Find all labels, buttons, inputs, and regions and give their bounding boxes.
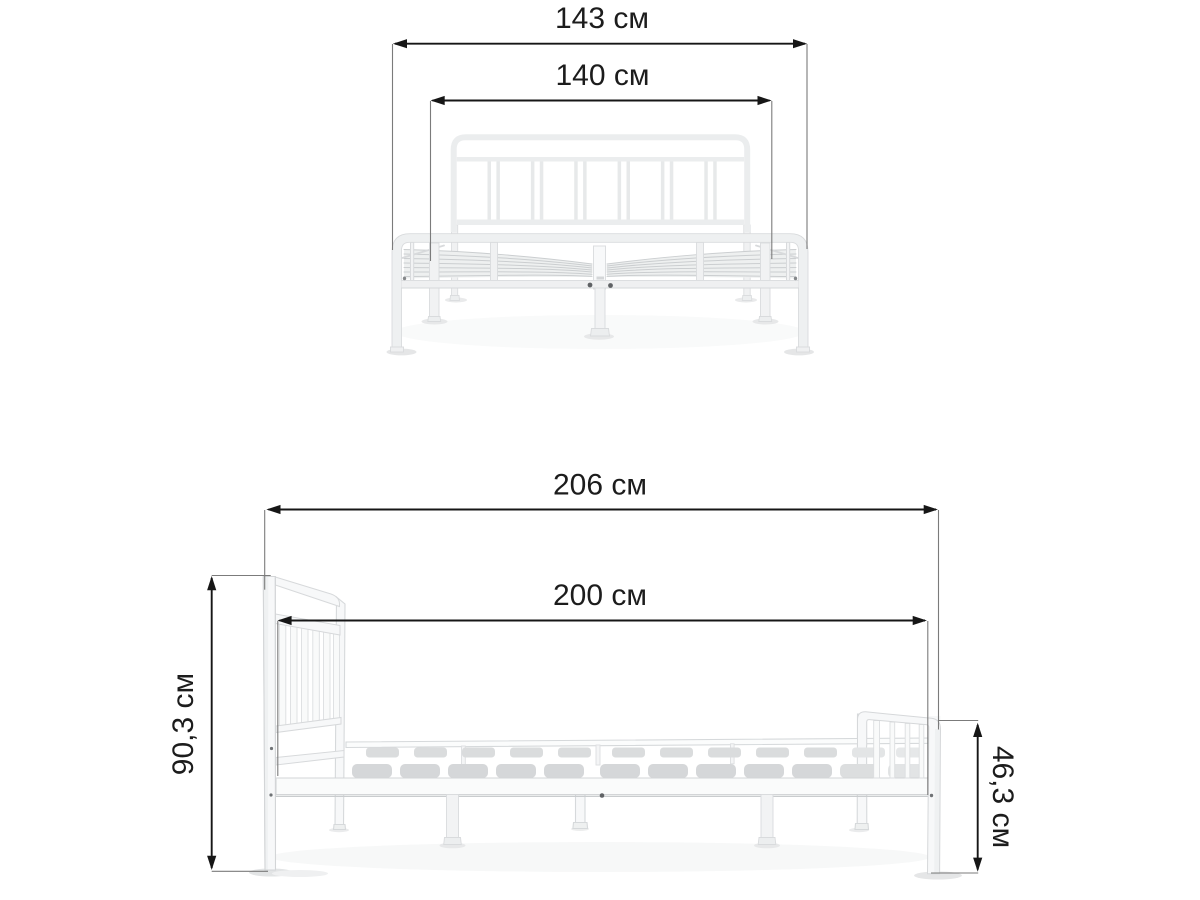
svg-text:143 см: 143 см: [555, 2, 649, 35]
svg-text:206 см: 206 см: [553, 469, 647, 502]
svg-text:200 см: 200 см: [553, 579, 647, 612]
svg-text:140 см: 140 см: [555, 59, 649, 92]
svg-text:90,3 см: 90,3 см: [167, 673, 200, 775]
svg-text:46,3 см: 46,3 см: [986, 746, 1019, 848]
